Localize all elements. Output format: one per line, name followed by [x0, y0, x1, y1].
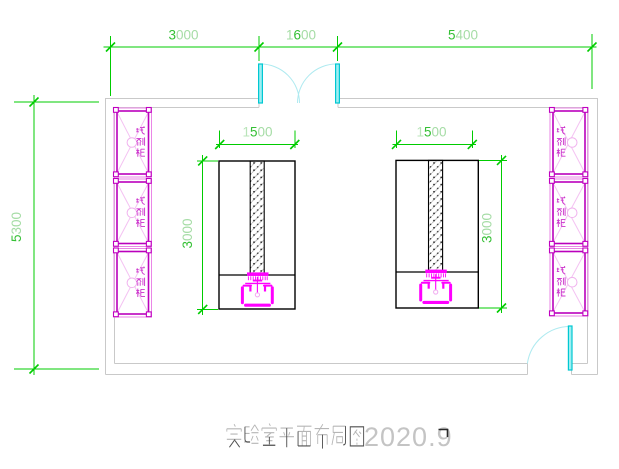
svg-text:5300: 5300	[9, 212, 24, 242]
svg-text:1600: 1600	[286, 28, 316, 43]
svg-text:3000: 3000	[479, 213, 494, 243]
svg-text:1500: 1500	[242, 125, 272, 140]
svg-text:3000: 3000	[180, 218, 195, 248]
svg-text:5400: 5400	[448, 28, 478, 43]
svg-text:3000: 3000	[168, 28, 198, 43]
svg-text:2020.9: 2020.9	[364, 422, 453, 452]
svg-text:1500: 1500	[416, 125, 446, 140]
